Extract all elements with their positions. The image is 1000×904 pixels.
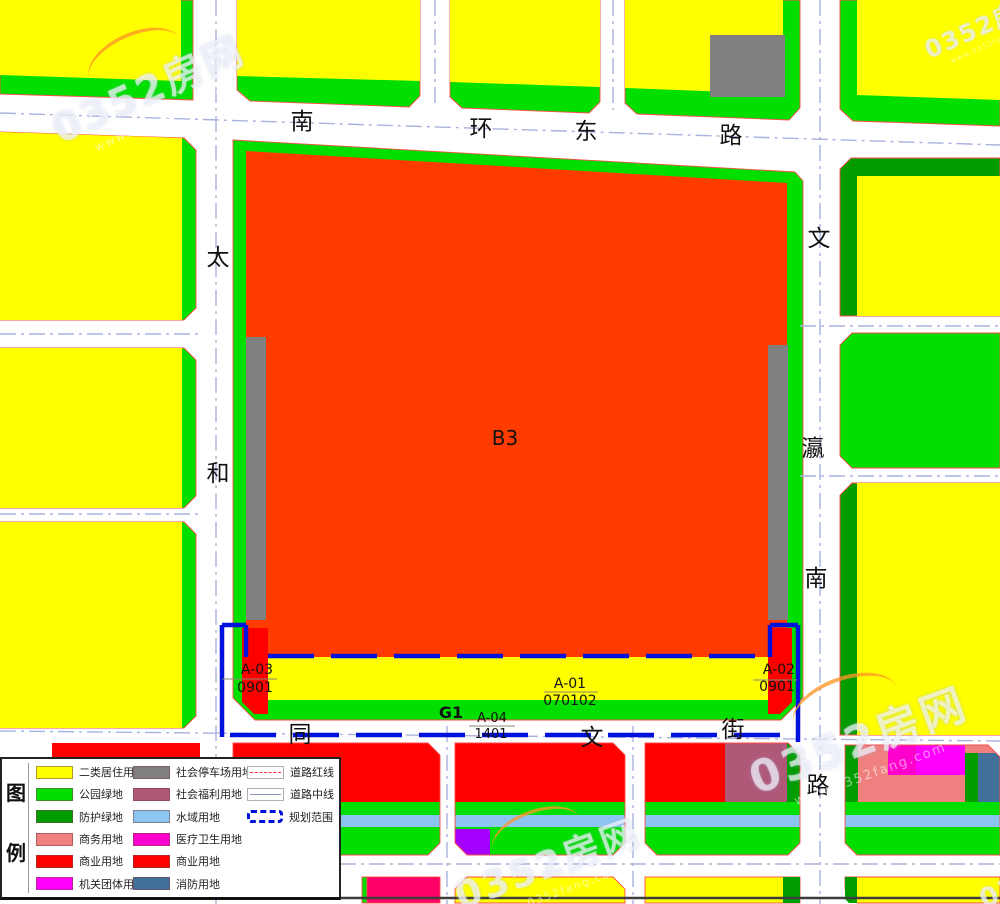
legend-swatch: [133, 788, 170, 801]
residential-block: [0, 522, 182, 728]
road-name-char: 街: [722, 717, 745, 743]
medical-parcel: [888, 745, 916, 775]
legend-item-label: 公园绿地: [79, 786, 123, 802]
residential-block: [237, 0, 420, 81]
legend-divider: [28, 763, 29, 893]
legend-item: 机关团体用地: [36, 872, 145, 894]
road-name-char: 同: [289, 722, 312, 748]
legend-item-label: 社会福利用地: [176, 786, 242, 802]
parcel-code-a01: A-01: [554, 676, 586, 692]
legend-item-label: 社会停车场用地: [176, 764, 253, 780]
road-name-char: 路: [720, 123, 743, 149]
legend-column-1: 二类居住用地 公园绿地 防护绿地 商务用地 商业用地 机关团体用地: [36, 761, 145, 895]
legend-item: 公园绿地: [36, 783, 145, 805]
parking-strip-right: [768, 345, 788, 620]
legend-item: 商业用地: [133, 850, 253, 872]
legend-item-label: 规划范围: [289, 809, 333, 825]
protective-green-strip: [845, 745, 858, 802]
right-blocks: [840, 158, 1000, 735]
legend-swatch: [133, 766, 170, 779]
legend-item: 水域用地: [133, 806, 253, 828]
road-name-char: 太: [207, 245, 230, 271]
legend-item: 规划范围: [247, 806, 334, 828]
legend-item: 道路红线: [247, 761, 334, 783]
legend-item-label: 消防用地: [176, 876, 220, 892]
legend-item-label: 道路中线: [290, 786, 334, 802]
planning-map-stage: B3 A-03 0901 A-01 070102 A-02 0901 G1 A-…: [0, 0, 1000, 904]
road-name-char: 文: [808, 226, 831, 252]
road-name-char: 东: [575, 119, 598, 145]
government-parcel: [916, 745, 965, 775]
green-strip: [455, 802, 625, 815]
parcel-code-a01-num: 070102: [543, 693, 596, 709]
mixed-block: [455, 743, 625, 855]
legend-item: 消防用地: [133, 872, 253, 894]
legend-item-label: 道路红线: [290, 764, 334, 780]
legend-panel: 图 例 二类居住用地 公园绿地 防护绿地 商务用地 商业用地 机关团体用地: [0, 757, 341, 900]
road-name-char: 和: [207, 461, 230, 487]
road-centerline-symbol: [247, 788, 284, 801]
parcel-code-a02-num: 0901: [759, 679, 795, 695]
parcel-code-a02: A-02: [763, 662, 795, 678]
commercial-strip: [645, 743, 725, 802]
road-name-char: 南: [291, 109, 314, 135]
legend-item: 社会福利用地: [133, 783, 253, 805]
legend-item: 防护绿地: [36, 806, 145, 828]
parcel-code-g1: G1: [439, 703, 463, 722]
residential-block: [857, 0, 1000, 100]
parking-lot-block: [710, 35, 785, 97]
legend-item-label: 防护绿地: [79, 809, 123, 825]
green-strip: [645, 827, 800, 855]
residential-block: [0, 0, 181, 81]
social-welfare-parcel: [725, 743, 787, 802]
green-strip: [845, 802, 1000, 815]
legend-swatch: [36, 855, 73, 868]
residential-block: [857, 483, 1000, 735]
legend-item: 商务用地: [36, 828, 145, 850]
parcel-a01-residential: [268, 657, 768, 700]
legend-item: 社会停车场用地: [133, 761, 253, 783]
planning-scope-symbol: [247, 810, 283, 823]
green-strip: [845, 827, 1000, 855]
legend-swatch: [36, 766, 73, 779]
protective-green-strip: [965, 753, 978, 802]
parcel-b3-commercial: [246, 151, 787, 657]
residential-block: [0, 348, 182, 508]
legend-column-3: 道路红线 道路中线 规划范围: [247, 761, 334, 828]
parking-strip-left: [246, 337, 266, 620]
legend-item-label: 商业用地: [176, 853, 220, 869]
road-name-char: 文: [581, 725, 604, 751]
road-name-char: 瀛: [802, 436, 825, 462]
water-strip: [845, 815, 1000, 827]
residential-block: [0, 132, 182, 320]
parcel-code-b3: B3: [492, 426, 518, 450]
road-name-char: 环: [470, 116, 493, 142]
parcel-code-a04: A-04: [477, 711, 507, 726]
legend-swatch: [133, 833, 170, 846]
mixed-block: [845, 745, 1000, 855]
legend-swatch: [133, 877, 170, 890]
commercial-strip: [455, 743, 625, 802]
legend-title-char: 例: [5, 837, 27, 866]
residential-block: [450, 0, 600, 87]
legend-item: 道路中线: [247, 783, 334, 805]
legend-swatch: [133, 810, 170, 823]
residential-block: [857, 176, 1000, 316]
left-blocks: [0, 132, 196, 728]
legend-item: 商业用地: [36, 850, 145, 872]
road-redline-symbol: [247, 766, 284, 779]
legend-item: 医疗卫生用地: [133, 828, 253, 850]
legend-item-label: 医疗卫生用地: [176, 831, 242, 847]
fire-station-parcel: [978, 753, 1000, 802]
legend-column-2: 社会停车场用地 社会福利用地 水域用地 医疗卫生用地 商业用地 消防用地: [133, 761, 253, 895]
green-strip: [645, 802, 800, 815]
legend-item-label: 商业用地: [79, 853, 123, 869]
legend-item: 二类居住用地: [36, 761, 145, 783]
legend-swatch: [36, 788, 73, 801]
legend-item-label: 水域用地: [176, 809, 220, 825]
road-name-char: 路: [807, 773, 830, 799]
legend-swatch: [36, 833, 73, 846]
water-strip: [455, 815, 625, 827]
legend-swatch: [36, 877, 73, 890]
parcel-code-a03-num: 0901: [237, 680, 273, 696]
water-strip: [645, 815, 800, 827]
legend-title-char: 图: [5, 777, 27, 806]
park-green-block: [840, 333, 1000, 468]
legend-swatch: [133, 855, 170, 868]
mixed-block: [645, 743, 800, 855]
road-name-char: 南: [805, 566, 828, 592]
legend-swatch: [36, 810, 73, 823]
parcel-code-a03: A-03: [241, 662, 273, 678]
legend-item-label: 商务用地: [79, 831, 123, 847]
parcel-code-a04-num: 1401: [474, 727, 507, 742]
